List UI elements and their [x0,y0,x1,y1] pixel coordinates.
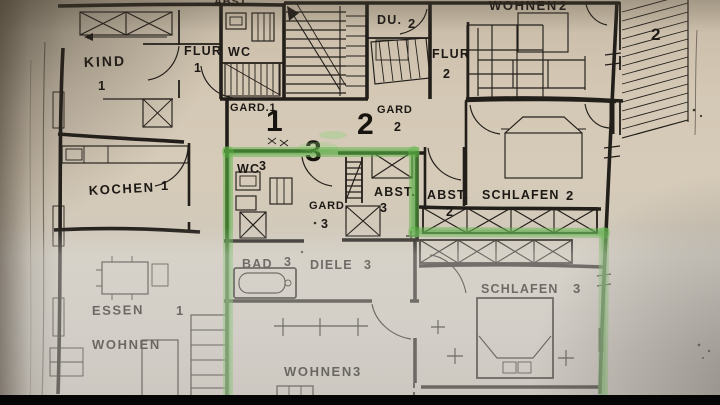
dining-table-essen [96,256,168,300]
room-label-flur2: FLUR [432,47,470,61]
room-number-wc3: 3 [259,159,267,173]
room-label-essen: ESSEN [92,302,144,318]
room-number-kochen: 1 [161,178,170,193]
room-number-abst2: 2 [446,205,454,219]
gard1-rack [225,63,280,96]
room-label-gard2: GARD [377,104,413,116]
room-number-gard2: 2 [394,120,402,134]
desk-symbol-kind [103,99,173,127]
room-label-wc3: WC [237,162,260,176]
room-number-kind: 1 [98,78,107,93]
wc1-fixtures [226,13,274,41]
unit-number-2: 2 [357,108,374,141]
room-number-abst3: 3 [380,201,388,215]
window-radiator-top-left [80,12,172,41]
room-label-gard3: GARD. [309,200,348,212]
room-label-schlafen2: SCHLAFEN [482,188,560,202]
bed-symbol-schlafen2 [501,117,586,178]
room-number-diele3: 3 [364,258,372,272]
room-label-du2: DU. [377,13,402,27]
room-label-kochen: KOCHEN [88,180,155,198]
room-number-du2: 2 [408,16,417,31]
bed-symbol-schlafen3 [431,298,574,378]
left-wall-radiator [50,348,83,376]
room-label-abst1: ABST. [214,0,250,8]
floor-plan-drawing: ABST. KIND 1 FLUR 1 WC GARD.1 1 2 3 GARD… [0,0,720,405]
bathtub-symbol [234,268,296,298]
room-number-flur2: 2 [443,67,451,81]
gard3-crate [346,206,380,236]
room-label-flur1: FLUR [184,44,222,58]
room-number-schlafen2: 2 [566,188,575,203]
room-label-diele3: DIELE [310,258,353,272]
wohnen3-sideboard [274,318,368,336]
kitchen-counter [62,146,188,163]
room-label-wohnen2: WOHNEN [489,0,558,13]
paper-fold-line [42,42,45,400]
room-number-gard3: 3 [321,217,329,231]
balcony-number: 2 [651,25,660,44]
floor-plan-photo: ABST. KIND 1 FLUR 1 WC GARD.1 1 2 3 GARD… [0,0,720,405]
gard2-rack [371,38,430,84]
room-label-bad3: BAD [242,257,273,271]
room-number-wohnen2: 2 [559,0,568,13]
letterbox-bar [0,395,720,405]
room-label-wohnen3: WOHNEN [284,364,353,379]
staircase [286,4,366,96]
room-number-essen: 1 [176,303,185,318]
room-label-kind: KIND [84,53,127,70]
room-number-wohnen3: 3 [353,364,362,379]
room-label-wohnen1: WOHNEN [92,337,161,352]
room-label-schlafen3: SCHLAFEN [481,282,559,296]
unit-number-1: 1 [266,105,283,138]
abst3-ladder [346,157,362,203]
balcony-hatch [622,0,697,138]
wc3-fixtures [236,172,292,238]
door-swing-ticks [268,138,288,146]
room-label-wc1: WC [228,45,251,59]
room-label-abst2: ABST. [427,188,469,202]
room-number-schlafen3: 3 [573,281,582,296]
paper-fold-line [30,60,31,402]
stair-direction-arrow [287,6,299,21]
wohnen2-closet [478,28,585,96]
wohnen1-shelf [191,315,226,400]
room-number-flur1: 1 [194,61,202,75]
room-number-bad3: 3 [284,255,292,269]
